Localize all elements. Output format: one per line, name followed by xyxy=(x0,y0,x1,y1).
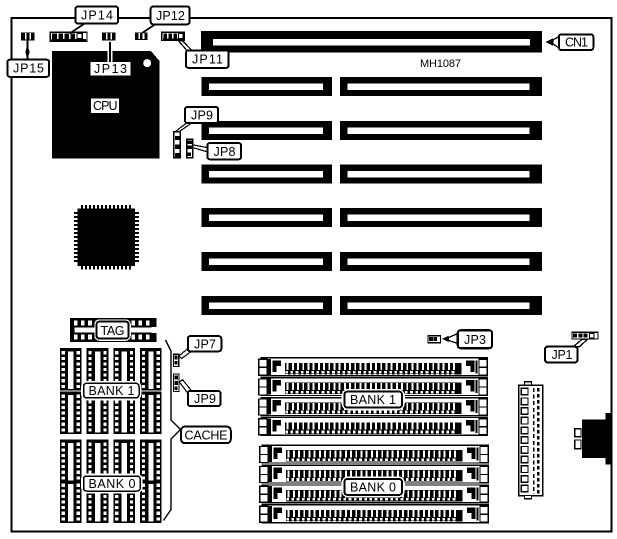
svg-text:BANK 0: BANK 0 xyxy=(350,480,396,494)
svg-text:CPU: CPU xyxy=(93,99,118,113)
svg-text:JP8: JP8 xyxy=(214,145,236,159)
svg-text:JP1: JP1 xyxy=(552,348,573,362)
svg-text:BANK 1: BANK 1 xyxy=(89,384,135,398)
svg-text:JP9: JP9 xyxy=(194,392,216,406)
svg-text:JP9: JP9 xyxy=(191,109,213,123)
svg-text:JP11: JP11 xyxy=(192,53,223,67)
svg-text:CN1: CN1 xyxy=(565,36,588,50)
svg-text:TAG: TAG xyxy=(101,324,125,338)
svg-text:BANK 0: BANK 0 xyxy=(89,477,136,491)
svg-text:JP12: JP12 xyxy=(156,9,185,23)
svg-text:JP15: JP15 xyxy=(13,62,44,76)
svg-text:JP3: JP3 xyxy=(464,333,486,347)
svg-text:MH1087: MH1087 xyxy=(420,58,461,70)
svg-text:CACHE: CACHE xyxy=(185,429,228,443)
svg-text:JP14: JP14 xyxy=(81,8,113,22)
svg-text:BANK 1: BANK 1 xyxy=(350,393,396,407)
svg-text:JP7: JP7 xyxy=(194,337,216,351)
